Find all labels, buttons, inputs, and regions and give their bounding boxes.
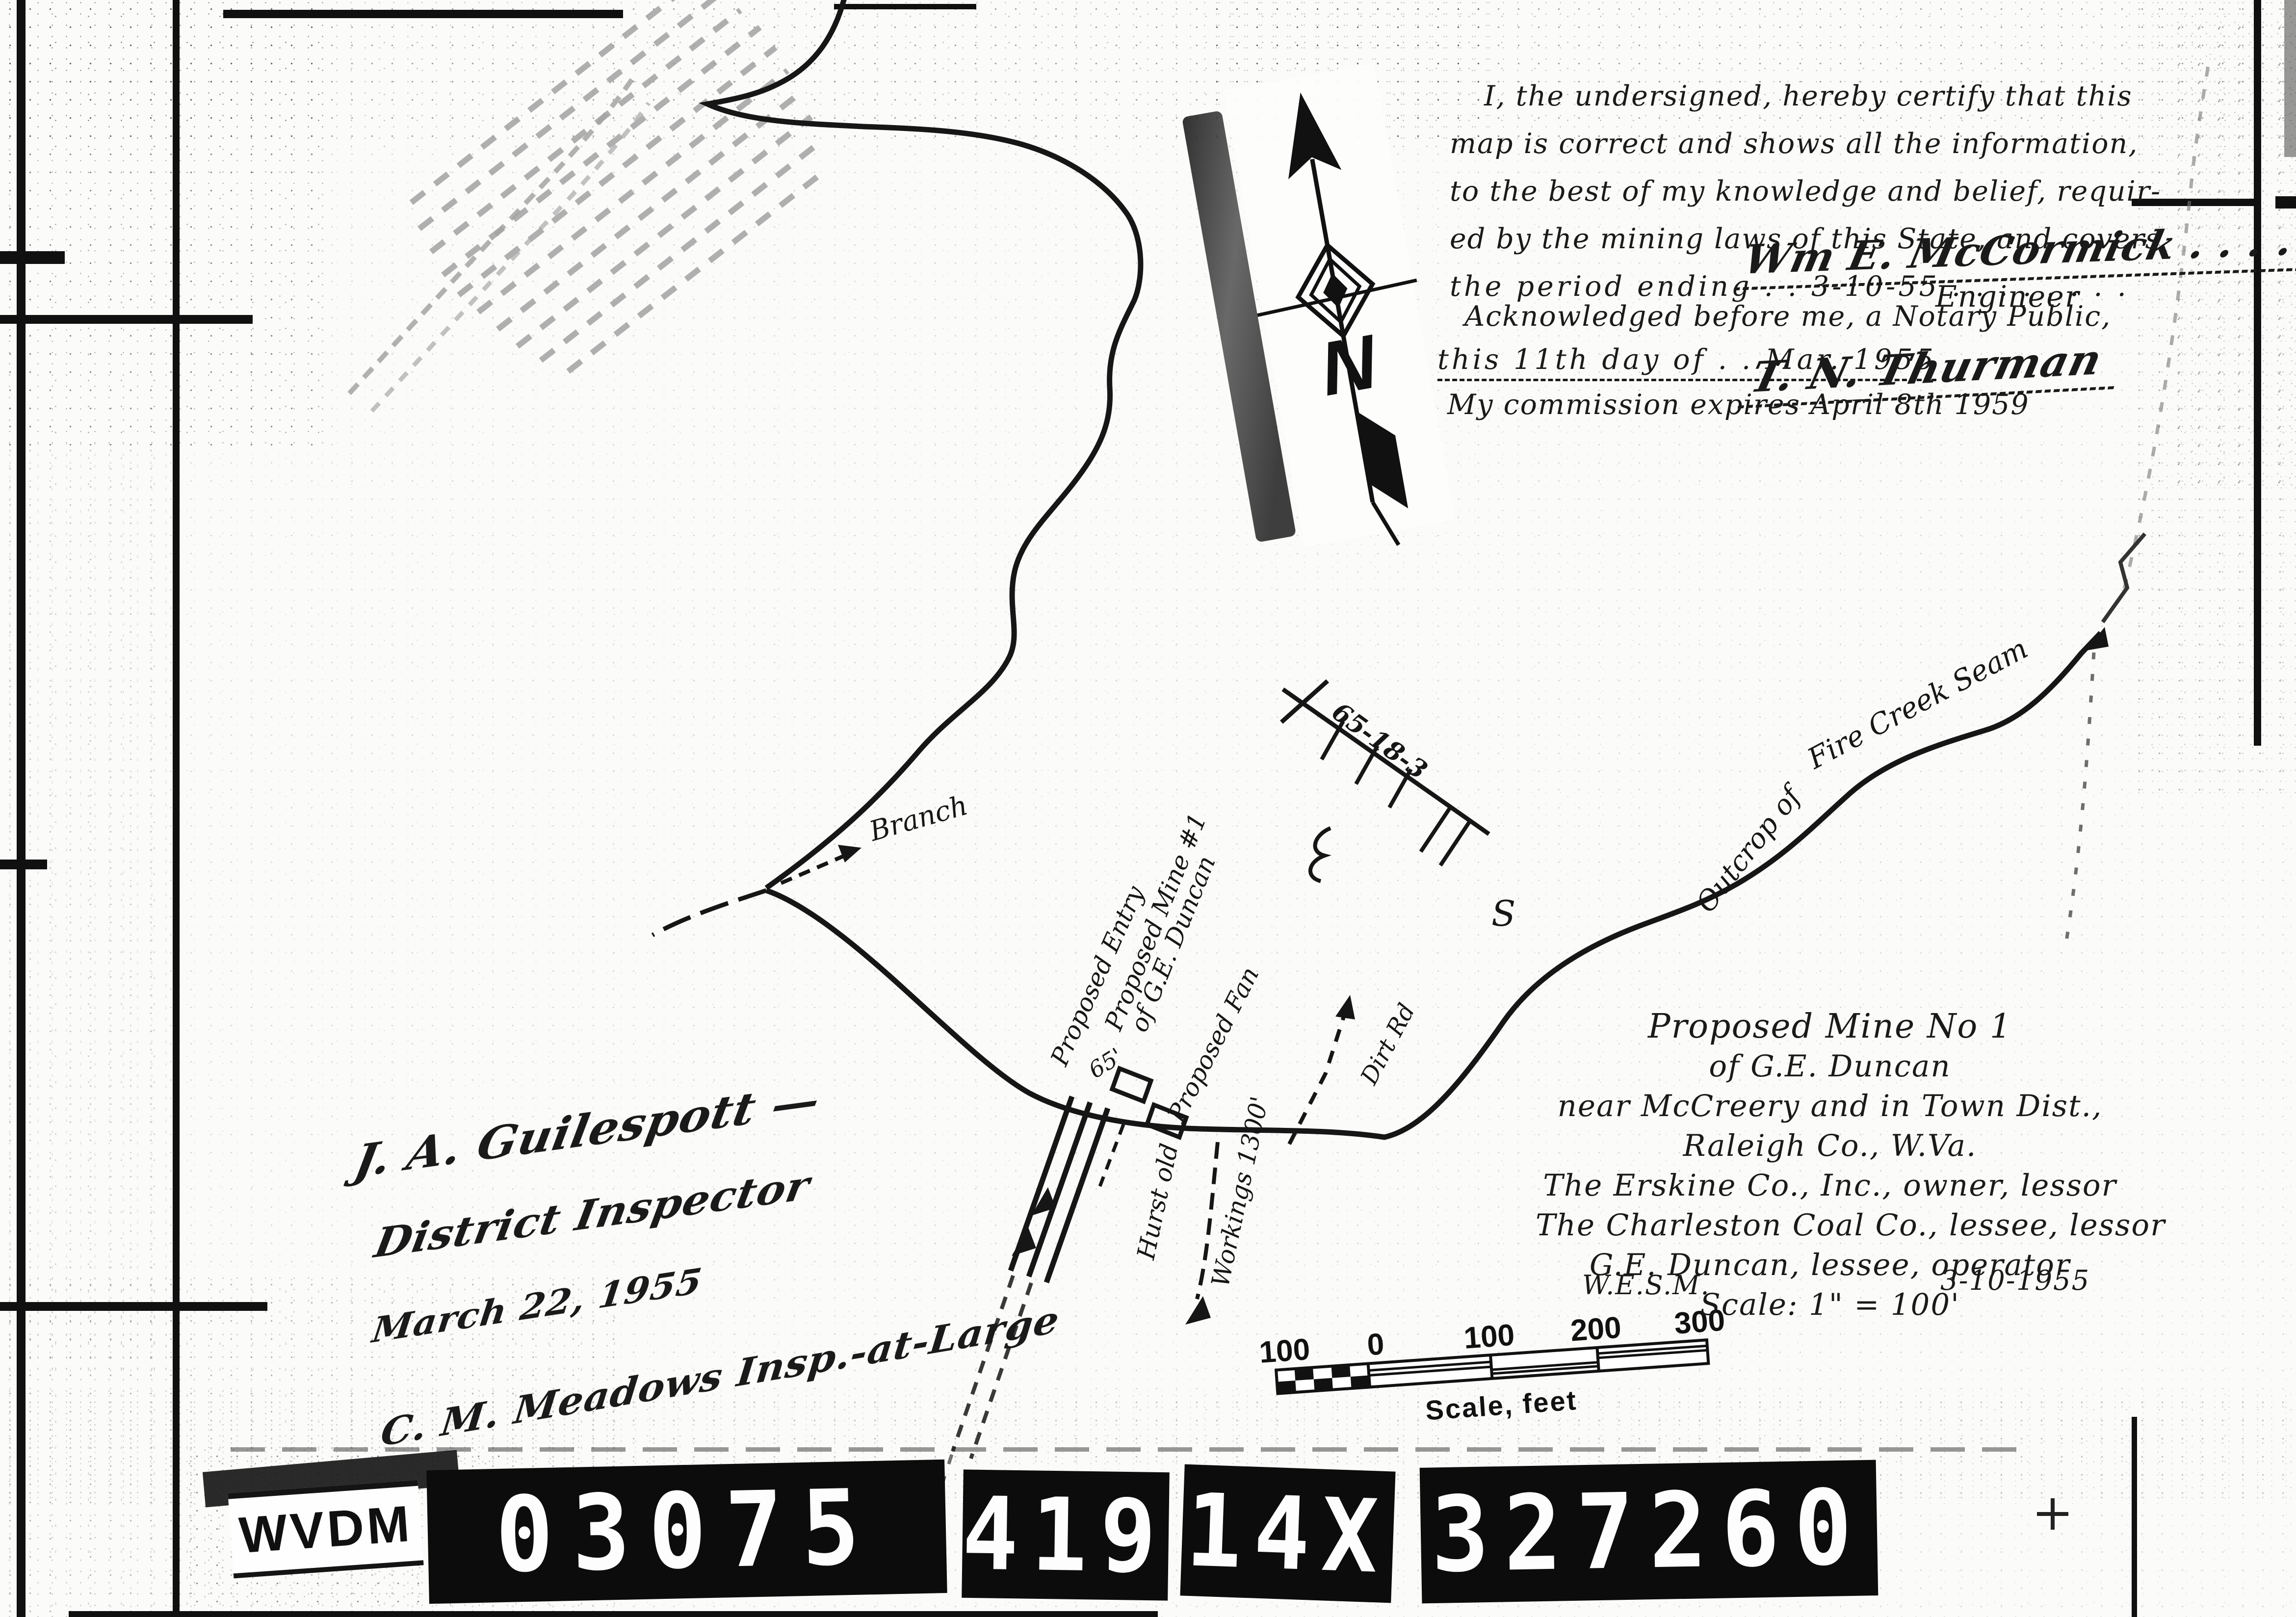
register-cross [2037,1498,2068,1530]
ghost-workings-hatch [396,0,854,395]
svg-text:0: 0 [1366,1327,1385,1362]
title-line-2: of G.E. Duncan [1536,1046,2124,1086]
id-plate-agency: WVDM [228,1480,423,1579]
commission-line: My commission expires April 8th 1959 [1447,389,2030,421]
title-line-1: Proposed Mine No 1 [1536,1007,2124,1046]
title-line-5: The Erskine Co., Inc., owner, lessor [1536,1166,2124,1205]
cert-line-1: I, the undersigned, hereby certify that … [1450,73,2176,120]
id-plate-number-1-text: 03075 [494,1467,879,1596]
north-arrow-icon: N [1178,63,1461,569]
survey-marks [1281,681,1489,881]
id-plate-agency-text: WVDM [237,1494,415,1565]
title-footer-date: 3-10-1955 [1940,1265,2090,1297]
svg-text:100: 100 [1462,1318,1515,1356]
id-plate-number-3-text: 14X [1184,1471,1391,1595]
dirt-road-arrowhead [1335,995,1355,1019]
title-footer-initials: W.E.S.M. [1582,1270,1710,1301]
id-plate-number-2-text: 419 [962,1475,1170,1595]
scanned-mine-map-document: { "certification": { "line1": "I, the un… [0,0,2296,1617]
id-plate-number-4: 327260 [1420,1460,1879,1604]
s-mark-label: S [1491,893,1515,934]
title-line-4: Raleigh Co., W.Va. [1536,1126,2124,1166]
ridge-zigzag [2103,534,2145,622]
title-line-6: The Charleston Coal Co., lessee, lessor [1536,1205,2124,1245]
outcrop-arrowhead [2086,627,2109,651]
boundary-continuation-dashed [2066,652,2094,941]
id-plate-number-2: 419 [962,1469,1170,1600]
cert-line-3: to the best of my knowledge and belief, … [1450,168,2176,215]
id-plate-number-1: 03075 [426,1460,947,1604]
scale-caption: Scale, feet [1424,1384,1578,1426]
boundary-line-upper [707,0,1141,888]
branch-arrowhead [838,845,861,862]
old-workings-arrowhead [1185,1296,1211,1325]
creek-tail-left [652,890,766,935]
id-plate-number-4-text: 327260 [1430,1467,1868,1596]
cert-line-2: map is correct and shows all the informa… [1450,120,2176,168]
id-plate-number-3: 14X [1180,1464,1395,1603]
dirt-road-line [1289,1003,1348,1144]
title-line-3: near McCreery and in Town Dist., [1536,1086,2124,1126]
ack-line-1: Acknowledged before me, a Notary Public, [1464,300,2111,333]
svg-text:100: 100 [1258,1332,1311,1370]
